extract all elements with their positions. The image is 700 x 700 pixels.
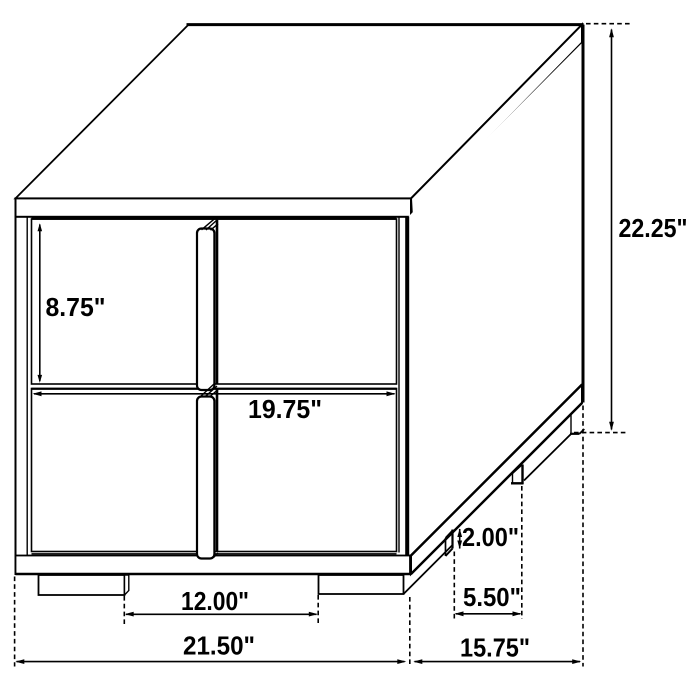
svg-text:15.75": 15.75": [460, 634, 530, 662]
svg-text:8.75": 8.75": [46, 294, 106, 322]
svg-text:5.50": 5.50": [463, 584, 521, 612]
svg-text:12.00": 12.00": [181, 588, 249, 616]
svg-text:2.00": 2.00": [462, 524, 519, 552]
svg-text:22.25": 22.25": [619, 215, 688, 243]
svg-text:21.50": 21.50": [183, 632, 255, 660]
svg-text:19.75": 19.75": [248, 396, 322, 424]
